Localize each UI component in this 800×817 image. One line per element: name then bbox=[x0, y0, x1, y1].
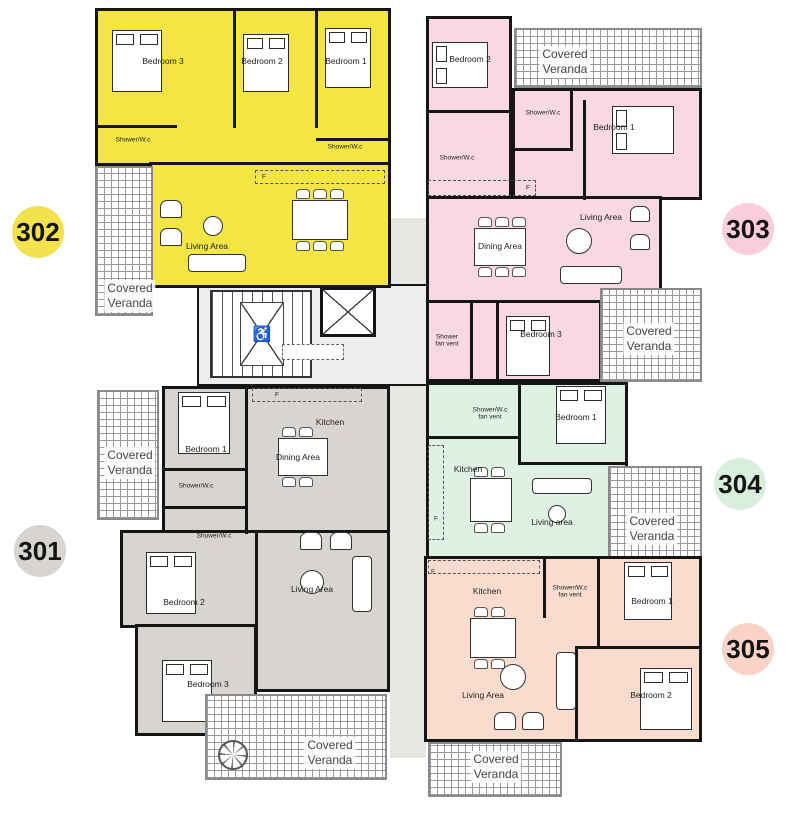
room-label-303-shower-c: Shower fan vent bbox=[435, 334, 458, 349]
wall bbox=[570, 88, 573, 150]
room-label-303-shower-a: Shower/W.c bbox=[526, 109, 561, 116]
wall bbox=[315, 8, 318, 128]
round-table-icon bbox=[500, 664, 526, 690]
wall bbox=[496, 300, 499, 382]
fridge-marker-303: F bbox=[526, 184, 530, 191]
sofa-icon bbox=[352, 556, 372, 612]
room-label-301-shower-a: Shower/W.c bbox=[179, 482, 214, 489]
sofa-icon bbox=[556, 652, 576, 710]
badge-302: 302 bbox=[12, 206, 64, 258]
armchair-icon bbox=[630, 206, 650, 222]
wall bbox=[316, 138, 391, 141]
wall bbox=[95, 125, 177, 128]
armchair-icon bbox=[494, 712, 516, 730]
armchair-icon bbox=[160, 228, 182, 246]
wall bbox=[597, 556, 600, 646]
kitchen-counter bbox=[252, 388, 362, 402]
bed-icon bbox=[624, 562, 672, 620]
wall bbox=[426, 110, 512, 113]
room-label-304-living: Living area bbox=[531, 518, 573, 528]
fridge-marker-301: F bbox=[275, 391, 279, 398]
wall bbox=[426, 436, 518, 439]
wall bbox=[162, 506, 248, 509]
wall bbox=[543, 556, 546, 618]
room-label-303-dining: Dining Area bbox=[478, 242, 522, 252]
stairs: ♿ bbox=[210, 290, 312, 378]
kitchen-table-icon bbox=[470, 478, 512, 522]
dining-table-icon bbox=[292, 200, 348, 240]
room-label-305-living: Living Area bbox=[462, 691, 504, 701]
bed-icon bbox=[432, 42, 488, 88]
armchair-icon bbox=[522, 712, 544, 730]
room-label-305-kitchen: Kitchen bbox=[473, 587, 501, 597]
room-label-302-shower-b: Shower/W.c bbox=[328, 143, 363, 150]
room-label-305-bedroom1: Bedroom 1 bbox=[631, 597, 673, 607]
room-label-305-bedroom2: Bedroom 2 bbox=[630, 691, 672, 701]
veranda-label-303-bottom: Covered Veranda bbox=[623, 323, 674, 355]
fridge-marker-305: F bbox=[431, 568, 435, 575]
floor-plan: Bedroom 3 Bedroom 2 Bedroom 1 Shower/W.c… bbox=[0, 0, 800, 817]
kitchen-counter bbox=[255, 170, 385, 184]
fridge-marker-302: F bbox=[262, 173, 266, 180]
room-label-301-living: Living Area bbox=[291, 585, 333, 595]
room-label-303-bedroom3: Bedroom 3 bbox=[520, 330, 562, 340]
bed-icon bbox=[506, 316, 550, 376]
room-label-305-shower: Shower/W.c fan vent bbox=[553, 585, 588, 600]
room-label-302-living: Living Area bbox=[186, 242, 228, 252]
wall bbox=[512, 148, 573, 151]
kitchen-counter bbox=[428, 445, 444, 540]
room-label-302-bedroom2: Bedroom 2 bbox=[241, 57, 283, 67]
sofa-icon bbox=[188, 254, 246, 272]
room-label-303-shower-b: Shower/W.c bbox=[440, 154, 475, 161]
badge-301: 301 bbox=[14, 525, 66, 577]
veranda-label-301-bottom: Covered Veranda bbox=[304, 737, 355, 769]
room-label-304-shower: Shower/W.c fan vent bbox=[473, 407, 508, 422]
badge-304: 304 bbox=[714, 458, 766, 510]
round-table-icon bbox=[566, 228, 592, 254]
wall bbox=[575, 646, 702, 649]
veranda-label-303-top: Covered Veranda bbox=[539, 46, 590, 78]
wall bbox=[470, 300, 473, 382]
stair-sign-box bbox=[282, 344, 344, 360]
sofa-icon bbox=[532, 478, 592, 494]
veranda-label-304: Covered Veranda bbox=[626, 513, 677, 545]
armchair-icon bbox=[630, 234, 650, 250]
fan-icon bbox=[218, 740, 248, 770]
room-label-301-dining: Dining Area bbox=[276, 453, 320, 463]
wall bbox=[518, 382, 521, 462]
room-label-302-shower-a: Shower/W.c bbox=[116, 136, 151, 143]
wheelchair-icon: ♿ bbox=[253, 327, 272, 342]
room-label-301-bedroom2: Bedroom 2 bbox=[163, 598, 205, 608]
veranda-label-302: Covered Veranda bbox=[104, 280, 155, 312]
kitchen-counter bbox=[428, 560, 540, 574]
room-label-303-bedroom2: Bedroom 2 bbox=[449, 55, 491, 65]
wall bbox=[162, 468, 248, 471]
dining-table-icon bbox=[470, 618, 516, 658]
round-table-icon bbox=[203, 216, 223, 236]
badge-305: 305 bbox=[722, 623, 774, 675]
sofa-icon bbox=[560, 266, 622, 284]
stair-landing: ♿ bbox=[240, 302, 284, 366]
fridge-marker-304: F bbox=[434, 515, 438, 522]
wall bbox=[233, 8, 236, 128]
armchair-icon bbox=[160, 200, 182, 218]
room-label-304-kitchen: Kitchen bbox=[454, 465, 482, 475]
wall bbox=[518, 462, 628, 465]
room-label-301-bedroom3: Bedroom 3 bbox=[187, 680, 229, 690]
room-label-304-bedroom1: Bedroom 1 bbox=[555, 413, 597, 423]
room-label-303-bedroom1: Bedroom 1 bbox=[593, 123, 635, 133]
room-label-303-living: Living Area bbox=[580, 213, 622, 223]
room-label-302-bedroom3: Bedroom 3 bbox=[142, 57, 184, 67]
wall bbox=[245, 386, 248, 534]
veranda-label-301-left: Covered Veranda bbox=[104, 447, 155, 479]
veranda-label-305: Covered Veranda bbox=[470, 751, 521, 783]
wall bbox=[583, 100, 586, 200]
room-label-301-bedroom1: Bedroom 1 bbox=[185, 445, 227, 455]
badge-303: 303 bbox=[722, 203, 774, 255]
kitchen-counter bbox=[428, 180, 536, 196]
armchair-icon bbox=[300, 532, 322, 550]
room-label-301-shower-b: Shower/W.c bbox=[197, 532, 232, 539]
elevator bbox=[320, 287, 376, 337]
armchair-icon bbox=[330, 532, 352, 550]
room-label-302-bedroom1: Bedroom 1 bbox=[325, 57, 367, 67]
room-label-301-kitchen: Kitchen bbox=[316, 418, 344, 428]
